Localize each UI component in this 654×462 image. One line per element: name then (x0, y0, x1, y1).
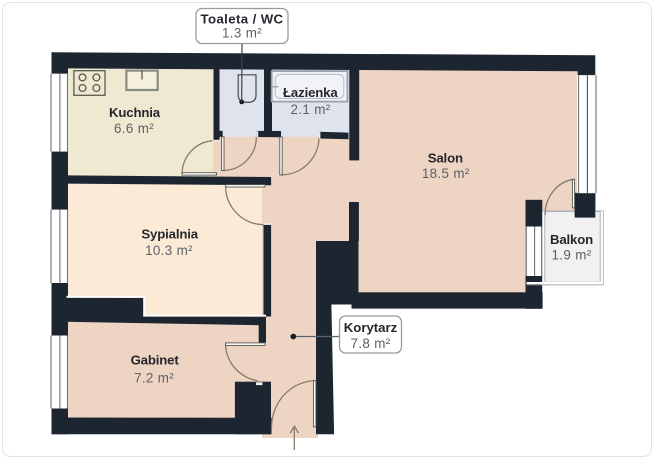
svg-text:18.5 m²: 18.5 m² (422, 166, 470, 181)
svg-text:6.6 m²: 6.6 m² (114, 121, 154, 136)
svg-text:Salon: Salon (428, 151, 463, 166)
svg-text:Korytarz: Korytarz (344, 320, 398, 335)
svg-text:Sypialnia: Sypialnia (141, 226, 198, 241)
svg-text:7.8 m²: 7.8 m² (350, 336, 390, 351)
svg-text:Toaleta / WC: Toaleta / WC (201, 12, 284, 27)
svg-text:7.2 m²: 7.2 m² (134, 370, 174, 385)
svg-text:1.3 m²: 1.3 m² (222, 26, 262, 41)
svg-text:2.1 m²: 2.1 m² (290, 102, 330, 117)
svg-text:1.9 m²: 1.9 m² (551, 248, 591, 263)
svg-text:Łazienka: Łazienka (283, 85, 338, 100)
svg-text:Gabinet: Gabinet (131, 353, 180, 368)
svg-text:10.3 m²: 10.3 m² (145, 243, 193, 258)
svg-text:Balkon: Balkon (550, 232, 593, 247)
svg-text:Kuchnia: Kuchnia (109, 105, 161, 120)
